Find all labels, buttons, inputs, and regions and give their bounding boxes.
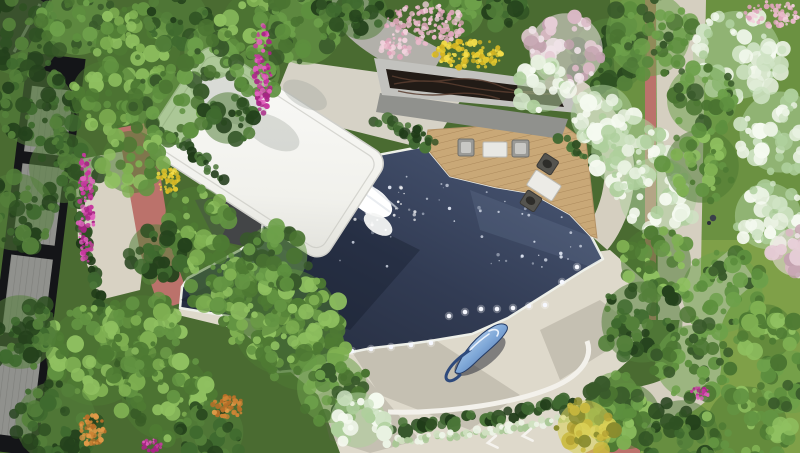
armchair (512, 140, 529, 157)
coffee-table (483, 142, 507, 157)
courtyard-aerial-rendering (0, 0, 800, 453)
rendered-scene (0, 0, 800, 453)
tree (330, 390, 393, 447)
armchair (458, 139, 474, 156)
